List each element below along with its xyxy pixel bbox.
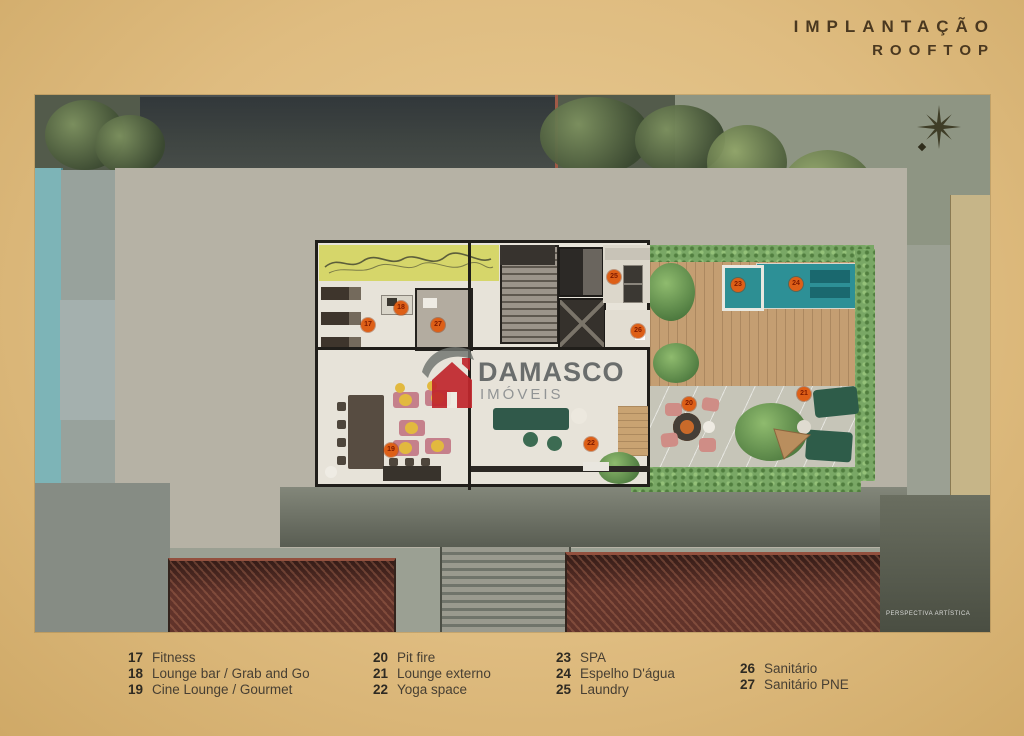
legend-item: 19Cine Lounge / Gourmet — [128, 682, 310, 698]
legend-item: 21Lounge externo — [373, 666, 491, 682]
legend: 17Fitness 18Lounge bar / Grab and Go 19C… — [0, 650, 1024, 710]
legend-item-number: 26 — [740, 661, 764, 676]
coffee-table — [571, 408, 587, 424]
wall-art-squiggle — [319, 245, 499, 281]
page: IMPLANTAÇÃO ROOFTOP — [0, 0, 1024, 736]
plan-marker-22: 22 — [584, 437, 598, 451]
pool-bench — [810, 287, 850, 298]
washing-machine — [623, 265, 643, 284]
plan-marker-20: 20 — [682, 397, 696, 411]
legend-item-label: Sanitário PNE — [764, 677, 849, 692]
chair — [337, 402, 346, 411]
tree — [540, 97, 650, 175]
watermark-brand: DAMASCO — [478, 357, 625, 388]
compass-rose-icon — [915, 103, 963, 153]
artistic-perspective-note: PERSPECTIVA ARTÍSTICA — [886, 611, 970, 617]
legend-item: 18Lounge bar / Grab and Go — [128, 666, 310, 682]
legend-item-number: 17 — [128, 650, 152, 665]
glass-facade — [471, 466, 650, 472]
indoor-sofa — [493, 408, 569, 430]
legend-item-number: 24 — [556, 666, 580, 681]
plan-marker-26: 26 — [631, 324, 645, 338]
plan-marker-25: 25 — [607, 270, 621, 284]
hedge-bottom — [631, 467, 861, 492]
bottom-left-paving — [35, 483, 170, 632]
pouf — [701, 397, 720, 412]
legend-item-number: 23 — [556, 650, 580, 665]
legend-item-label: Laundry — [580, 682, 629, 697]
legend-column-2: 20Pit fire 21Lounge externo 22Yoga space — [373, 650, 491, 698]
interior-wall — [315, 347, 650, 350]
legend-item: 24Espelho D'água — [556, 666, 675, 682]
legend-item-number: 25 — [556, 682, 580, 697]
plan-marker-23: 23 — [731, 278, 745, 292]
legend-item-number: 27 — [740, 677, 764, 692]
legend-item: 26Sanitário — [740, 661, 849, 677]
pouf — [547, 436, 562, 451]
plan-marker-27: 27 — [431, 318, 445, 332]
pouf — [523, 432, 538, 447]
pouf — [660, 432, 678, 448]
chair — [337, 438, 346, 447]
legend-item: 25Laundry — [556, 682, 675, 698]
legend-column-4: 26Sanitário 27Sanitário PNE — [740, 661, 849, 693]
legend-item-label: Sanitário — [764, 661, 817, 676]
title-line-2: ROOFTOP — [794, 42, 995, 59]
legend-item-number: 18 — [128, 666, 152, 681]
chair — [337, 456, 346, 465]
plan-marker-24: 24 — [789, 277, 803, 291]
plan-marker-21: 21 — [797, 387, 811, 401]
wood-planter — [772, 427, 812, 461]
legend-item: 27Sanitário PNE — [740, 677, 849, 693]
legend-item: 23SPA — [556, 650, 675, 666]
laundry-counter — [605, 248, 650, 260]
treadmill — [321, 312, 361, 325]
floor-lamp — [325, 466, 337, 478]
washing-machine — [623, 284, 643, 303]
wc-fixture — [423, 298, 437, 308]
right-wall — [950, 195, 990, 515]
legend-item-label: SPA — [580, 650, 606, 665]
legend-item-number: 19 — [128, 682, 152, 697]
bush — [647, 263, 695, 321]
ottoman — [395, 383, 405, 393]
legend-item: 22Yoga space — [373, 682, 491, 698]
legend-item-number: 20 — [373, 650, 397, 665]
outdoor-sofa — [813, 386, 860, 418]
legend-column-1: 17Fitness 18Lounge bar / Grab and Go 19C… — [128, 650, 310, 698]
slab-edge-shadow — [280, 487, 907, 547]
plan-marker-19: 19 — [384, 443, 398, 457]
yoga-deck — [618, 406, 648, 456]
treadmill — [321, 287, 361, 300]
neighbor-roof-top-left — [140, 95, 558, 175]
legend-item-label: Lounge bar / Grab and Go — [152, 666, 310, 681]
fitness-accent-wall — [319, 245, 499, 281]
neighbor-roof-bottom-right — [565, 552, 884, 632]
plan-marker-17: 17 — [361, 318, 375, 332]
legend-item-label: Pit fire — [397, 650, 435, 665]
stairs-lower-level — [440, 547, 571, 632]
watermark-subtitle: IMÓVEIS — [480, 386, 564, 403]
pouf — [699, 438, 716, 452]
hedge-top — [648, 245, 874, 262]
legend-item-label: Espelho D'água — [580, 666, 675, 681]
title-line-1: IMPLANTAÇÃO — [794, 17, 995, 37]
rooftop-site-plan: DAMASCO IMÓVEIS PERSPECTIVA ARTÍSTICA 17… — [35, 95, 990, 632]
bush — [653, 343, 699, 383]
legend-item-label: Lounge externo — [397, 666, 491, 681]
lounge-armchair — [425, 438, 451, 454]
outdoor-sofa — [805, 429, 853, 462]
side-table — [703, 421, 715, 433]
facade-door — [583, 462, 609, 471]
legend-item-number: 21 — [373, 666, 397, 681]
grab-and-go-counter — [383, 466, 441, 481]
neighbor-roof-bottom-left — [168, 558, 396, 632]
legend-column-3: 23SPA 24Espelho D'água 25Laundry — [556, 650, 675, 698]
legend-item-label: Fitness — [152, 650, 196, 665]
gourmet-table — [348, 395, 384, 469]
pool-bench — [810, 270, 850, 283]
plan-marker-18: 18 — [394, 301, 408, 315]
page-title: IMPLANTAÇÃO ROOFTOP — [794, 17, 988, 59]
lounge-armchair — [399, 420, 425, 436]
legend-item: 20Pit fire — [373, 650, 491, 666]
chair — [337, 420, 346, 429]
legend-item-number: 22 — [373, 682, 397, 697]
legend-item-label: Cine Lounge / Gourmet — [152, 682, 292, 697]
legend-item: 17Fitness — [128, 650, 310, 666]
pouf — [665, 403, 682, 416]
hedge-right — [855, 249, 875, 481]
lounge-armchair — [393, 392, 419, 408]
tree — [95, 115, 165, 175]
bar-stool — [389, 458, 398, 466]
legend-item-label: Yoga space — [397, 682, 467, 697]
bar-stool — [421, 458, 430, 466]
elevator — [558, 247, 604, 297]
bar-stool — [405, 458, 414, 466]
house-logo-icon — [418, 338, 480, 412]
stair-landing — [500, 245, 555, 265]
elevator — [558, 298, 606, 349]
